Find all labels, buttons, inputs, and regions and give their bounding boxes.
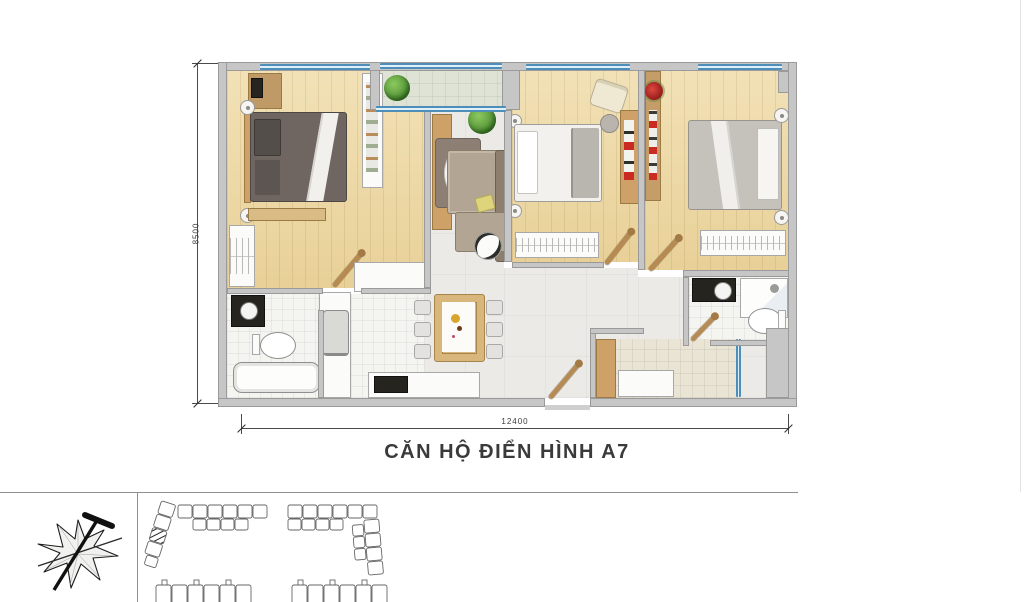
cooktop (374, 376, 408, 393)
wardrobe-1 (229, 225, 255, 287)
bed-2 (514, 124, 602, 202)
entry-side-door-glass (736, 339, 741, 397)
dining-chair (486, 322, 503, 337)
outer-wall-bottom (218, 398, 545, 407)
north-arrow-compass-icon (30, 506, 135, 598)
dim-height-label: 8500 (192, 204, 201, 264)
building-row-left (156, 580, 251, 602)
entry-cabinet-strip (596, 339, 616, 398)
dining-chair (486, 300, 503, 315)
bed-1 (250, 112, 347, 202)
page-right-edge (1020, 0, 1021, 492)
dining-table-top (442, 302, 475, 352)
building-l-left (142, 501, 267, 568)
wall (590, 333, 596, 398)
wall (227, 288, 323, 294)
divider-horizontal (0, 492, 798, 493)
bathtub (233, 362, 320, 393)
floor-plan-page: 8500 12400 CĂN HỘ ĐIỂN HÌNH A7 (0, 0, 1024, 602)
wall (318, 310, 324, 398)
dim-ext (241, 414, 242, 434)
vanity-1-basin (240, 302, 258, 320)
nightstand-lamp (774, 108, 789, 123)
dining-table-food (451, 314, 460, 323)
dining-chair (414, 344, 431, 359)
shower-head (770, 284, 779, 293)
pouf (600, 114, 619, 133)
dim-line-horizontal (241, 428, 789, 429)
building-l-right (288, 505, 383, 576)
desk-2-items (624, 120, 634, 180)
shoe-cabinet (618, 370, 674, 397)
wall (504, 110, 512, 262)
wall (638, 62, 645, 270)
outer-wall-right (788, 62, 797, 407)
nightstand-lamp (240, 100, 255, 115)
divider-shelf-items (649, 110, 657, 180)
nightstand-lamp (774, 210, 789, 225)
divider-vertical (137, 492, 138, 602)
vanity-2-basin (714, 282, 732, 300)
wall (361, 288, 431, 294)
building-row-right (292, 580, 387, 602)
dim-ext (788, 414, 789, 434)
dining-chair (414, 322, 431, 337)
outer-wall-left (218, 62, 227, 407)
side-table (474, 232, 502, 260)
entry-threshold (545, 405, 590, 410)
toilet-1 (260, 332, 296, 359)
floorplan (218, 62, 797, 407)
window-bedroom-2 (526, 64, 630, 70)
outer-wall-bottom (590, 398, 797, 407)
red-flower-pot (645, 82, 663, 100)
wall (424, 110, 431, 288)
window-bedroom-1 (260, 64, 370, 70)
bed-3 (688, 120, 782, 210)
dining-chair (486, 344, 503, 359)
kitchen-sink (323, 310, 349, 356)
plan-title: CĂN HỘ ĐIỂN HÌNH A7 (287, 441, 727, 464)
toilet-2-tank (778, 310, 786, 330)
dining-chair (414, 300, 431, 315)
bed-bench (248, 208, 326, 221)
window-bedroom-3 (698, 64, 782, 70)
toilet-1-tank (252, 334, 260, 355)
plant-balcony (384, 75, 410, 101)
site-plan (142, 497, 434, 602)
wall (683, 277, 689, 346)
wardrobe-3 (700, 230, 786, 256)
balcony-sliding-door (376, 106, 506, 112)
balcony-rail-glass (380, 63, 502, 69)
wall (590, 328, 644, 334)
wall (512, 262, 604, 268)
wardrobe-2 (515, 232, 599, 258)
dim-width-label: 12400 (448, 417, 582, 426)
wall (683, 270, 795, 277)
dressing-mirror (251, 78, 263, 98)
